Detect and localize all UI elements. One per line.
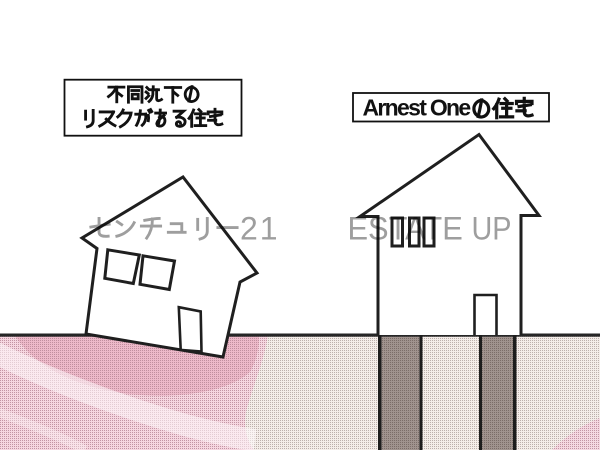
svg-text:UP: UP [472,211,512,247]
svg-text:ESTATE: ESTATE [348,211,463,247]
svg-text:Arnest One: Arnest One [363,95,471,121]
svg-text:21: 21 [240,211,280,247]
